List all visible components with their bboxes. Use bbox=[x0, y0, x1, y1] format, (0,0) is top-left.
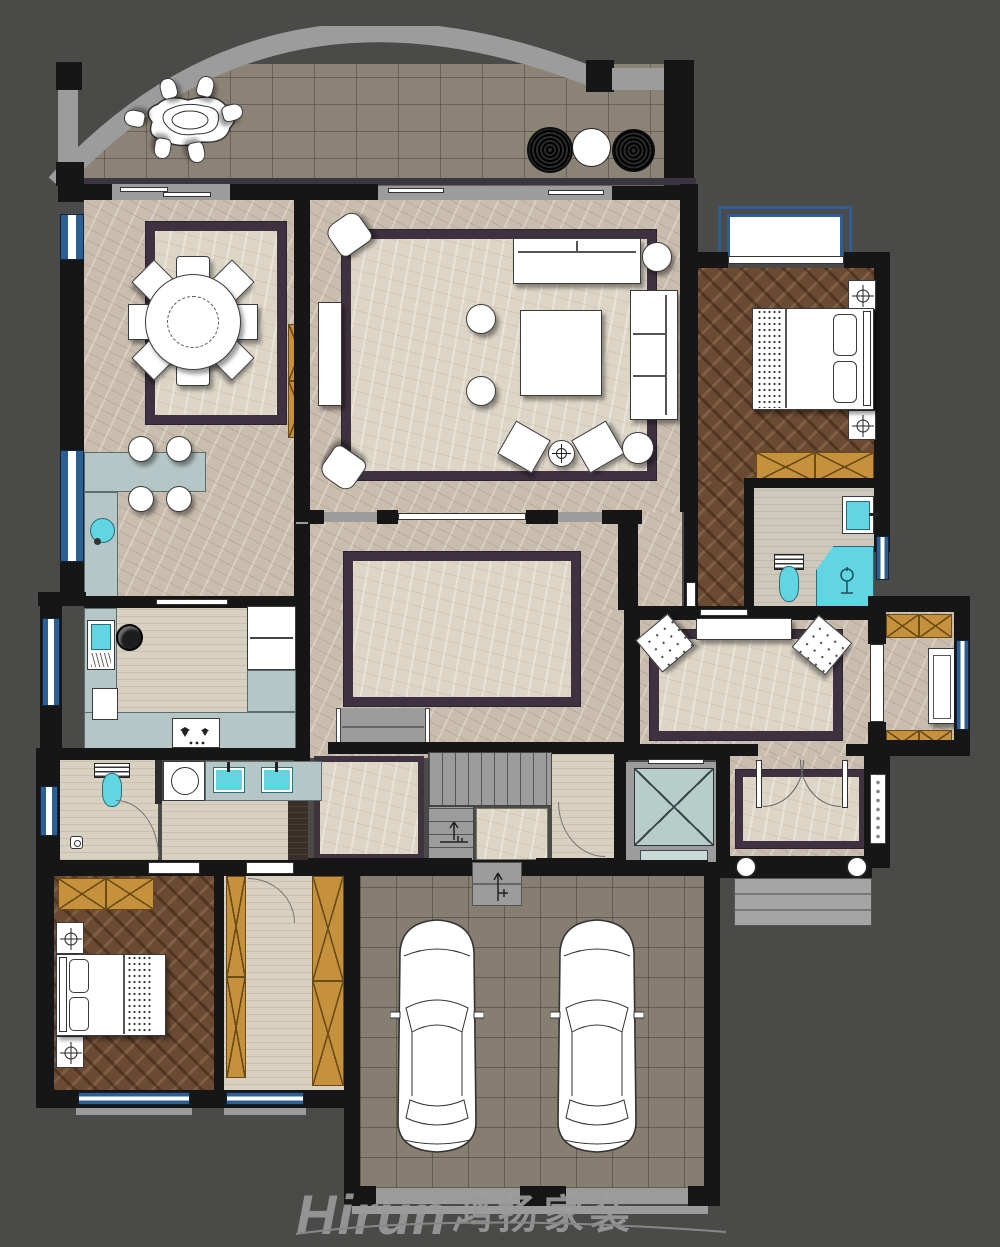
study-console-table bbox=[696, 618, 792, 640]
balcony-left-wall bbox=[868, 612, 886, 644]
window bbox=[42, 618, 60, 706]
toilet-bowl bbox=[779, 566, 799, 602]
garage-right-wall bbox=[704, 876, 720, 1188]
sliding-door-leaf bbox=[548, 190, 604, 195]
bar-stool bbox=[166, 436, 192, 462]
window-sill bbox=[224, 1108, 306, 1115]
lamp-target-icon bbox=[849, 281, 877, 311]
coffee-table bbox=[520, 310, 602, 396]
terrace-mid-column bbox=[586, 60, 614, 92]
laundry-hall-floor bbox=[162, 801, 306, 861]
side-sofa bbox=[630, 290, 678, 420]
bar-sink-tap bbox=[94, 538, 101, 545]
sofa-back-line bbox=[665, 295, 667, 415]
living-hall-wall bbox=[377, 510, 398, 524]
terrace-arch-parapet bbox=[48, 26, 608, 186]
kitchen-sink bbox=[87, 620, 115, 670]
stair-direction-arrow bbox=[434, 818, 474, 848]
sofa-cushion-line bbox=[576, 241, 578, 253]
washbasin-tap bbox=[869, 513, 879, 516]
hall-opening bbox=[398, 513, 526, 520]
bath-top-wall bbox=[36, 748, 310, 760]
floor-plan-canvas: Hirun 鸿扬家装 bbox=[0, 0, 1000, 1247]
window bbox=[78, 1092, 190, 1105]
kitchen-sink-grate bbox=[91, 653, 111, 667]
bedroom-left-wall bbox=[684, 268, 698, 608]
kitchen-prep-box bbox=[92, 688, 118, 720]
window-sill bbox=[76, 1108, 192, 1115]
sofa-cushion-line bbox=[633, 333, 665, 335]
nightstand bbox=[56, 922, 84, 954]
balcony-cabinet bbox=[919, 614, 952, 638]
pillow bbox=[833, 314, 857, 356]
side-table-target-icon bbox=[552, 444, 571, 463]
bed-fold-line bbox=[785, 309, 787, 408]
window bbox=[40, 786, 58, 836]
washer-drum bbox=[171, 767, 199, 795]
closet-door-opening bbox=[246, 862, 294, 874]
refrigerator bbox=[247, 606, 296, 670]
bedroom-corridor-door bbox=[700, 609, 748, 616]
stair-landing-marble bbox=[320, 762, 418, 854]
closet-wardrobe-left bbox=[226, 876, 246, 977]
kitchen-hall-wall bbox=[294, 524, 310, 762]
dining-table-inner-ring bbox=[167, 296, 219, 348]
floor-drain-hole bbox=[74, 840, 81, 847]
shoe-cabinet bbox=[870, 774, 886, 844]
balcony-bench bbox=[928, 648, 956, 724]
entry-column bbox=[846, 856, 868, 878]
stair-treads-upper bbox=[428, 752, 552, 806]
balcony-window bbox=[870, 644, 884, 722]
cooktop-burners-icon bbox=[173, 719, 221, 749]
round-side-table bbox=[622, 432, 654, 464]
terrace-left-column bbox=[56, 62, 82, 90]
console-table bbox=[318, 302, 342, 406]
terrace-flat-parapet bbox=[612, 68, 666, 90]
ottoman bbox=[466, 376, 496, 406]
vanity-tap bbox=[227, 762, 230, 772]
balcony-cabinet bbox=[886, 614, 919, 638]
bedroom2-left-wall bbox=[36, 874, 54, 1108]
sliding-door-leaf bbox=[163, 192, 211, 197]
bar-counter-return bbox=[84, 492, 118, 600]
pillow bbox=[69, 997, 89, 1031]
headboard bbox=[863, 311, 871, 406]
sliding-door-leaf bbox=[120, 187, 168, 192]
nightstand bbox=[848, 280, 876, 310]
nightstand bbox=[848, 410, 876, 440]
foyer-left-wall bbox=[716, 756, 730, 868]
kitchen-sliding-door bbox=[156, 599, 228, 605]
floor-drain-icon bbox=[70, 836, 83, 849]
cooktop bbox=[172, 718, 220, 748]
entry-column bbox=[735, 856, 757, 878]
washbasin bbox=[842, 496, 874, 534]
bed-fold-line bbox=[123, 955, 125, 1034]
closet-wardrobe-right bbox=[312, 876, 344, 981]
bar-stool bbox=[166, 486, 192, 512]
window bbox=[956, 640, 969, 730]
pillow bbox=[833, 361, 857, 403]
lamp-target-icon bbox=[57, 923, 85, 955]
planter bbox=[612, 129, 655, 172]
kitchen-counter-right bbox=[247, 670, 296, 712]
closet-wardrobe-left bbox=[226, 977, 246, 1078]
ottoman bbox=[466, 304, 496, 334]
window bbox=[60, 214, 84, 260]
bench-inner-line bbox=[933, 655, 951, 719]
kitchen-sink-basin bbox=[91, 624, 111, 650]
window bbox=[60, 450, 84, 562]
bedroom2-wardrobe bbox=[58, 878, 106, 910]
hall-east-wall bbox=[618, 510, 638, 610]
terrace-right-column bbox=[664, 60, 694, 188]
garage-entry-step bbox=[472, 862, 522, 906]
hall-opening-sill bbox=[558, 512, 602, 522]
garage-top-wall bbox=[344, 860, 708, 876]
bedroom2-wardrobe bbox=[106, 878, 154, 910]
logo-swoosh bbox=[296, 1182, 726, 1244]
washbasin-bowl bbox=[846, 501, 870, 530]
toilet-room-wall bbox=[155, 760, 162, 804]
shower-head-icon bbox=[835, 565, 859, 599]
bedroom-door-opening bbox=[148, 862, 200, 874]
living-hall-wall bbox=[310, 510, 324, 524]
bar-stool bbox=[128, 436, 154, 462]
stair-landing bbox=[314, 756, 424, 860]
bed-blanket-dotted bbox=[757, 309, 781, 408]
washing-machine bbox=[163, 761, 205, 801]
car bbox=[390, 910, 484, 1162]
headboard bbox=[59, 957, 67, 1032]
toilet bbox=[774, 554, 804, 606]
kitchen-pot bbox=[116, 624, 143, 651]
master-bed bbox=[752, 308, 874, 410]
bedroom-top-wall bbox=[684, 252, 728, 268]
living-hall-wall bbox=[526, 510, 558, 524]
terrace-left-lower-column bbox=[56, 162, 84, 186]
closet-wardrobe-right bbox=[312, 981, 344, 1086]
pillow bbox=[69, 959, 89, 993]
lamp-target-icon bbox=[849, 411, 877, 441]
elevator-cabin bbox=[634, 768, 714, 846]
lamp-target-icon bbox=[57, 1037, 85, 1069]
hall-marble-inlay-rug bbox=[344, 552, 580, 706]
bedroom2-closet-wall bbox=[214, 862, 224, 1092]
sliding-door-leaf bbox=[388, 188, 444, 193]
garage-left-wall bbox=[344, 876, 360, 1188]
sofa bbox=[513, 238, 641, 284]
bay-window-opening bbox=[728, 256, 844, 264]
entry-steps bbox=[734, 878, 872, 926]
brand-logo: Hirun 鸿扬家装 bbox=[296, 1182, 726, 1244]
window bbox=[226, 1092, 304, 1105]
bed-blanket-dotted bbox=[127, 955, 151, 1034]
bathroom-wall bbox=[744, 478, 876, 488]
terrace-left-pier bbox=[58, 90, 78, 164]
window bbox=[876, 536, 889, 580]
sofa-cushion-line bbox=[633, 375, 665, 377]
step-arrow-icon bbox=[481, 867, 515, 903]
nightstand bbox=[56, 1036, 84, 1068]
bathroom-wall-v bbox=[744, 486, 754, 610]
entry-door-leaf bbox=[756, 760, 762, 808]
dining-living-wall bbox=[294, 200, 310, 524]
planter bbox=[527, 127, 573, 173]
second-bed bbox=[56, 954, 166, 1036]
planter-white bbox=[572, 128, 611, 167]
hall-opening-sill bbox=[324, 512, 377, 522]
bar-stool bbox=[128, 486, 154, 512]
car bbox=[550, 910, 644, 1162]
bay-window-inner bbox=[727, 214, 843, 260]
dark-threshold bbox=[288, 801, 308, 861]
refrigerator-door-line bbox=[250, 637, 293, 639]
elevator-door bbox=[648, 759, 704, 764]
left-wall bbox=[60, 260, 84, 450]
stair-marble-patch bbox=[476, 808, 548, 860]
side-table bbox=[642, 242, 672, 272]
vanity-tap bbox=[275, 762, 278, 772]
stair-platform-line bbox=[342, 726, 424, 728]
balcony-bottom-wall bbox=[868, 740, 970, 756]
entry-door-leaf bbox=[842, 760, 848, 808]
